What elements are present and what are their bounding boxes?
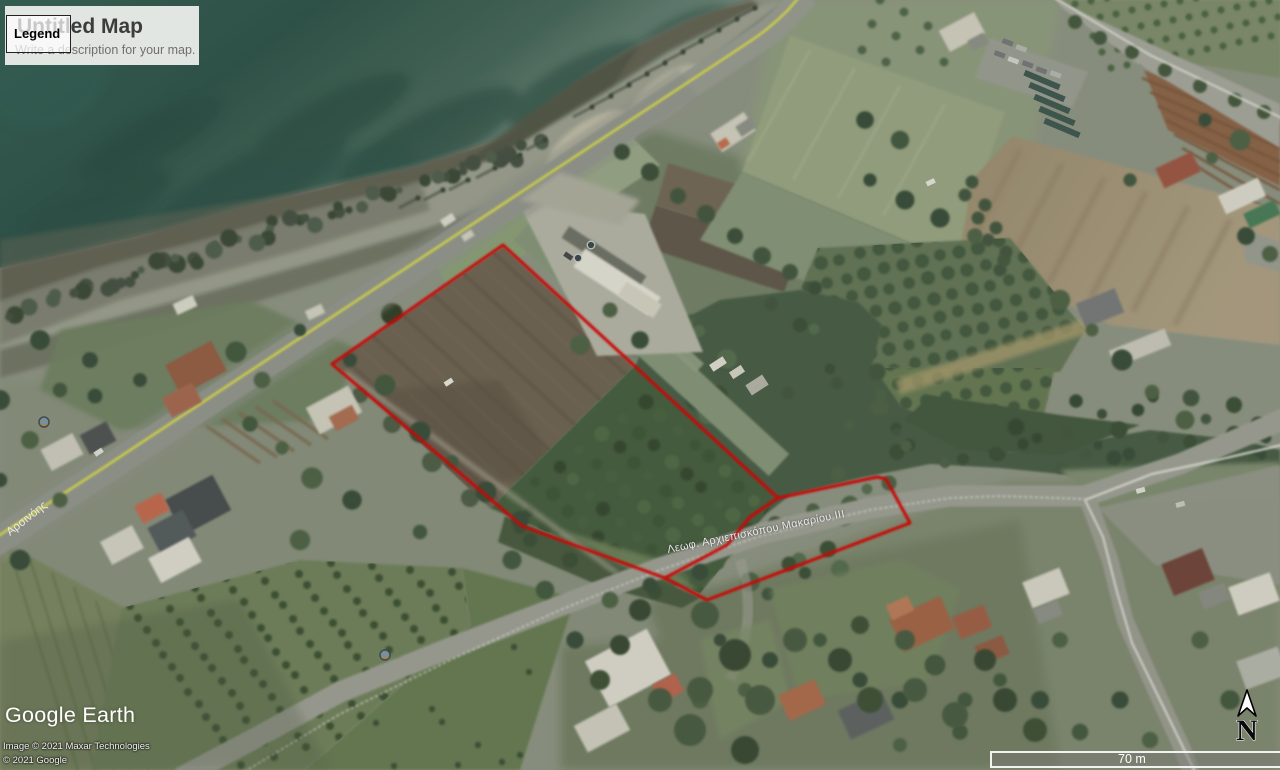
svg-text:N: N [1236,714,1258,744]
